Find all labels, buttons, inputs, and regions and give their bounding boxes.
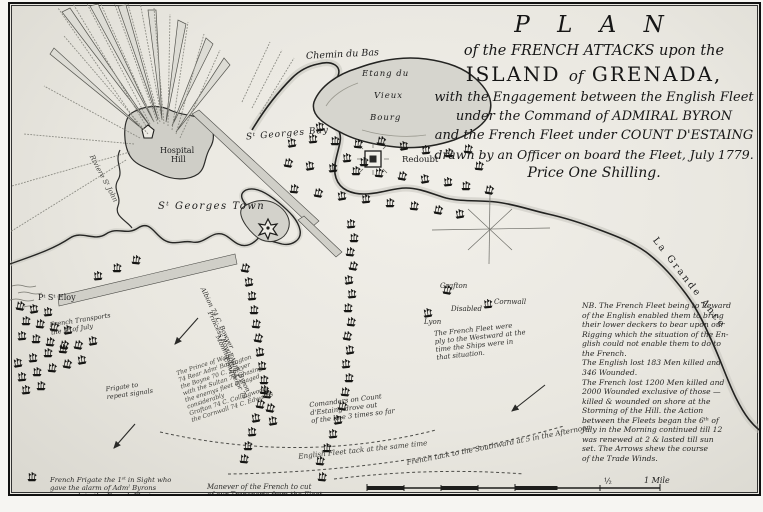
- ship-icon: [454, 208, 465, 219]
- ship-icon: [22, 316, 31, 325]
- ship-icon: [484, 184, 495, 195]
- note-line: 2000 Wounded exclusive of those —: [582, 387, 761, 397]
- note-line: NB. The French Fleet being to Leward: [582, 301, 761, 311]
- ship-icon: [433, 204, 444, 215]
- ship-icon: [342, 330, 353, 341]
- ship-icon: [345, 373, 354, 382]
- ship-icon: [374, 168, 384, 178]
- ship-icon: [409, 201, 419, 211]
- title-grenada: GRENADA,: [592, 62, 722, 86]
- title-of: of: [569, 67, 584, 85]
- note-line: between the Fleets began the 6ᵗʰ of: [582, 416, 761, 426]
- title-island: ISLAND: [466, 62, 561, 86]
- note-line: their lower deckers to bear upon our: [582, 320, 761, 330]
- label-vieux: Vieux: [374, 92, 403, 101]
- ship-icon: [344, 344, 355, 355]
- title-line6: and the French Fleet under COUNT D'ESTAI…: [418, 128, 761, 143]
- ship-icon: [43, 307, 53, 317]
- ship-icon: [239, 454, 249, 464]
- title-island-grenada: ISLAND of GRENADA,: [418, 62, 761, 86]
- ship-icon: [28, 303, 39, 314]
- label-st-georges-town: Sᵗ Georges Town: [158, 202, 265, 213]
- ship-icon: [250, 305, 259, 314]
- attack-beams: [50, 4, 230, 132]
- ship-icon: [342, 153, 352, 163]
- ship-icon: [21, 385, 31, 395]
- ship-icon: [47, 363, 57, 373]
- ship-icon: [37, 381, 46, 390]
- ship-icon: [15, 300, 26, 311]
- title-line4: with the Engagement between the English …: [418, 90, 761, 105]
- manoeuvre-note: Manever of the French to cut of our Tran…: [207, 483, 324, 496]
- note-line: Rigging which the situation of the En-: [582, 330, 761, 340]
- ship-icon: [62, 358, 73, 369]
- note-line: French Frigate the 1ˢᵗ in Sight who: [50, 476, 171, 484]
- ship-icon: [317, 472, 327, 482]
- ship-icon: [251, 319, 261, 329]
- note-line: Storming of the Hill. the Action: [582, 406, 761, 416]
- map-title-block: P L A N of the FRENCH ATTACKS upon the I…: [418, 10, 761, 181]
- scale-bar: [367, 484, 660, 491]
- ship-icon: [422, 307, 433, 318]
- ship-icon: [44, 348, 53, 357]
- scale-mile-label: 1 Mile: [644, 477, 670, 485]
- ship-icon: [267, 415, 278, 426]
- ship-icon: [28, 353, 38, 363]
- note-line: of the Trade Winds.: [582, 454, 761, 464]
- note-line: set. The Arrows shew the course: [582, 444, 761, 454]
- title-plan: P L A N: [418, 12, 761, 38]
- ship-icon: [343, 274, 354, 285]
- ship-icon: [35, 319, 45, 329]
- frigate-alarm-note: French Frigate the 1ˢᵗ in Sight who gave…: [50, 476, 171, 496]
- label-disabled: Disabled: [451, 306, 482, 313]
- ship-icon: [17, 331, 27, 341]
- title-line7: drawn by an Officer on board the Fleet, …: [418, 147, 761, 162]
- note-line: glish could not enable them to do to: [582, 339, 761, 349]
- ship-icon: [313, 187, 324, 198]
- ship-icon: [397, 170, 408, 181]
- title-line8: Price One Shilling.: [418, 165, 761, 181]
- ship-icon: [28, 472, 37, 481]
- ship-icon: [304, 160, 315, 171]
- ship-icon: [17, 372, 27, 382]
- title-line5: under the Command of ADMIRAL BYRON: [418, 109, 761, 124]
- ship-icon: [33, 367, 42, 376]
- label-lyon: Lyon: [424, 319, 441, 326]
- ship-icon: [347, 289, 357, 299]
- ship-icon: [462, 181, 471, 190]
- ship-icon: [265, 402, 276, 413]
- ship-icon: [93, 271, 103, 281]
- note-line: 346 Wounded.: [582, 368, 761, 378]
- label-redoubt: Redoubt: [402, 156, 438, 165]
- note-line: of our Transports from the Fleet.: [207, 491, 324, 496]
- ship-icon: [348, 260, 359, 271]
- label-pt-st-eloy: Pᵗ Sᵗ Eloy: [38, 294, 76, 302]
- note-line: Manever of the French to cut: [207, 483, 324, 491]
- note-line: approach to the French Fleet.: [50, 492, 171, 496]
- note-line: killed & wounded on shore at the: [582, 397, 761, 407]
- ship-icon: [87, 335, 98, 346]
- ship-icon: [131, 255, 141, 265]
- ship-icon: [247, 291, 257, 301]
- note-line: was renewed at 2 & lasted till sun: [582, 435, 761, 445]
- ship-icon: [76, 354, 87, 365]
- nb-note-block: NB. The French Fleet being to Leward of …: [582, 301, 761, 464]
- ship-icon: [386, 198, 395, 207]
- note-line: the French.: [582, 349, 761, 359]
- ship-icon: [346, 219, 356, 229]
- label-etang: Etang du: [362, 70, 409, 79]
- ship-icon: [113, 263, 122, 272]
- ship-icon: [12, 357, 23, 368]
- label-cornwall: Cornwall: [494, 299, 526, 306]
- ship-icon: [240, 262, 251, 273]
- ship-icon: [350, 233, 359, 242]
- note-line: gave the alarm of Admˡ Byrons: [50, 484, 171, 492]
- map-sheet: P L A N of the FRENCH ATTACKS upon the I…: [8, 2, 761, 496]
- note-line: The English lost 183 Men killed and: [582, 358, 761, 368]
- ship-icon: [73, 339, 84, 350]
- ship-icon: [346, 317, 356, 327]
- scale-half-label: ½: [604, 478, 612, 486]
- ship-icon: [247, 427, 257, 437]
- label-grafton: Grafton: [440, 283, 467, 290]
- ship-icon: [341, 359, 351, 369]
- ship-icon: [243, 276, 254, 287]
- ship-icon: [45, 337, 55, 347]
- note-line: The French lost 1200 Men killed and: [582, 378, 761, 388]
- map-photo: P L A N of the FRENCH ATTACKS upon the I…: [0, 0, 763, 512]
- ship-icon: [340, 387, 350, 397]
- ship-icon: [253, 332, 264, 343]
- ship-icon: [344, 303, 353, 312]
- label-hill: Hill: [171, 156, 186, 164]
- river: [116, 150, 132, 228]
- ship-icon: [352, 166, 361, 175]
- ship-icon: [483, 299, 493, 309]
- ship-icon: [32, 334, 41, 343]
- label-bourg: Bourg: [370, 114, 401, 123]
- title-line2: of the FRENCH ATTACKS upon the: [418, 43, 761, 59]
- ship-icon: [328, 429, 338, 439]
- note-line: of the English enabled them to bring: [582, 311, 761, 321]
- note-line: July in the Morning continued till 12: [582, 425, 761, 435]
- ship-icon: [283, 157, 294, 168]
- ship-icon: [345, 247, 355, 257]
- ship-icon: [289, 184, 299, 194]
- ship-icon: [250, 412, 261, 423]
